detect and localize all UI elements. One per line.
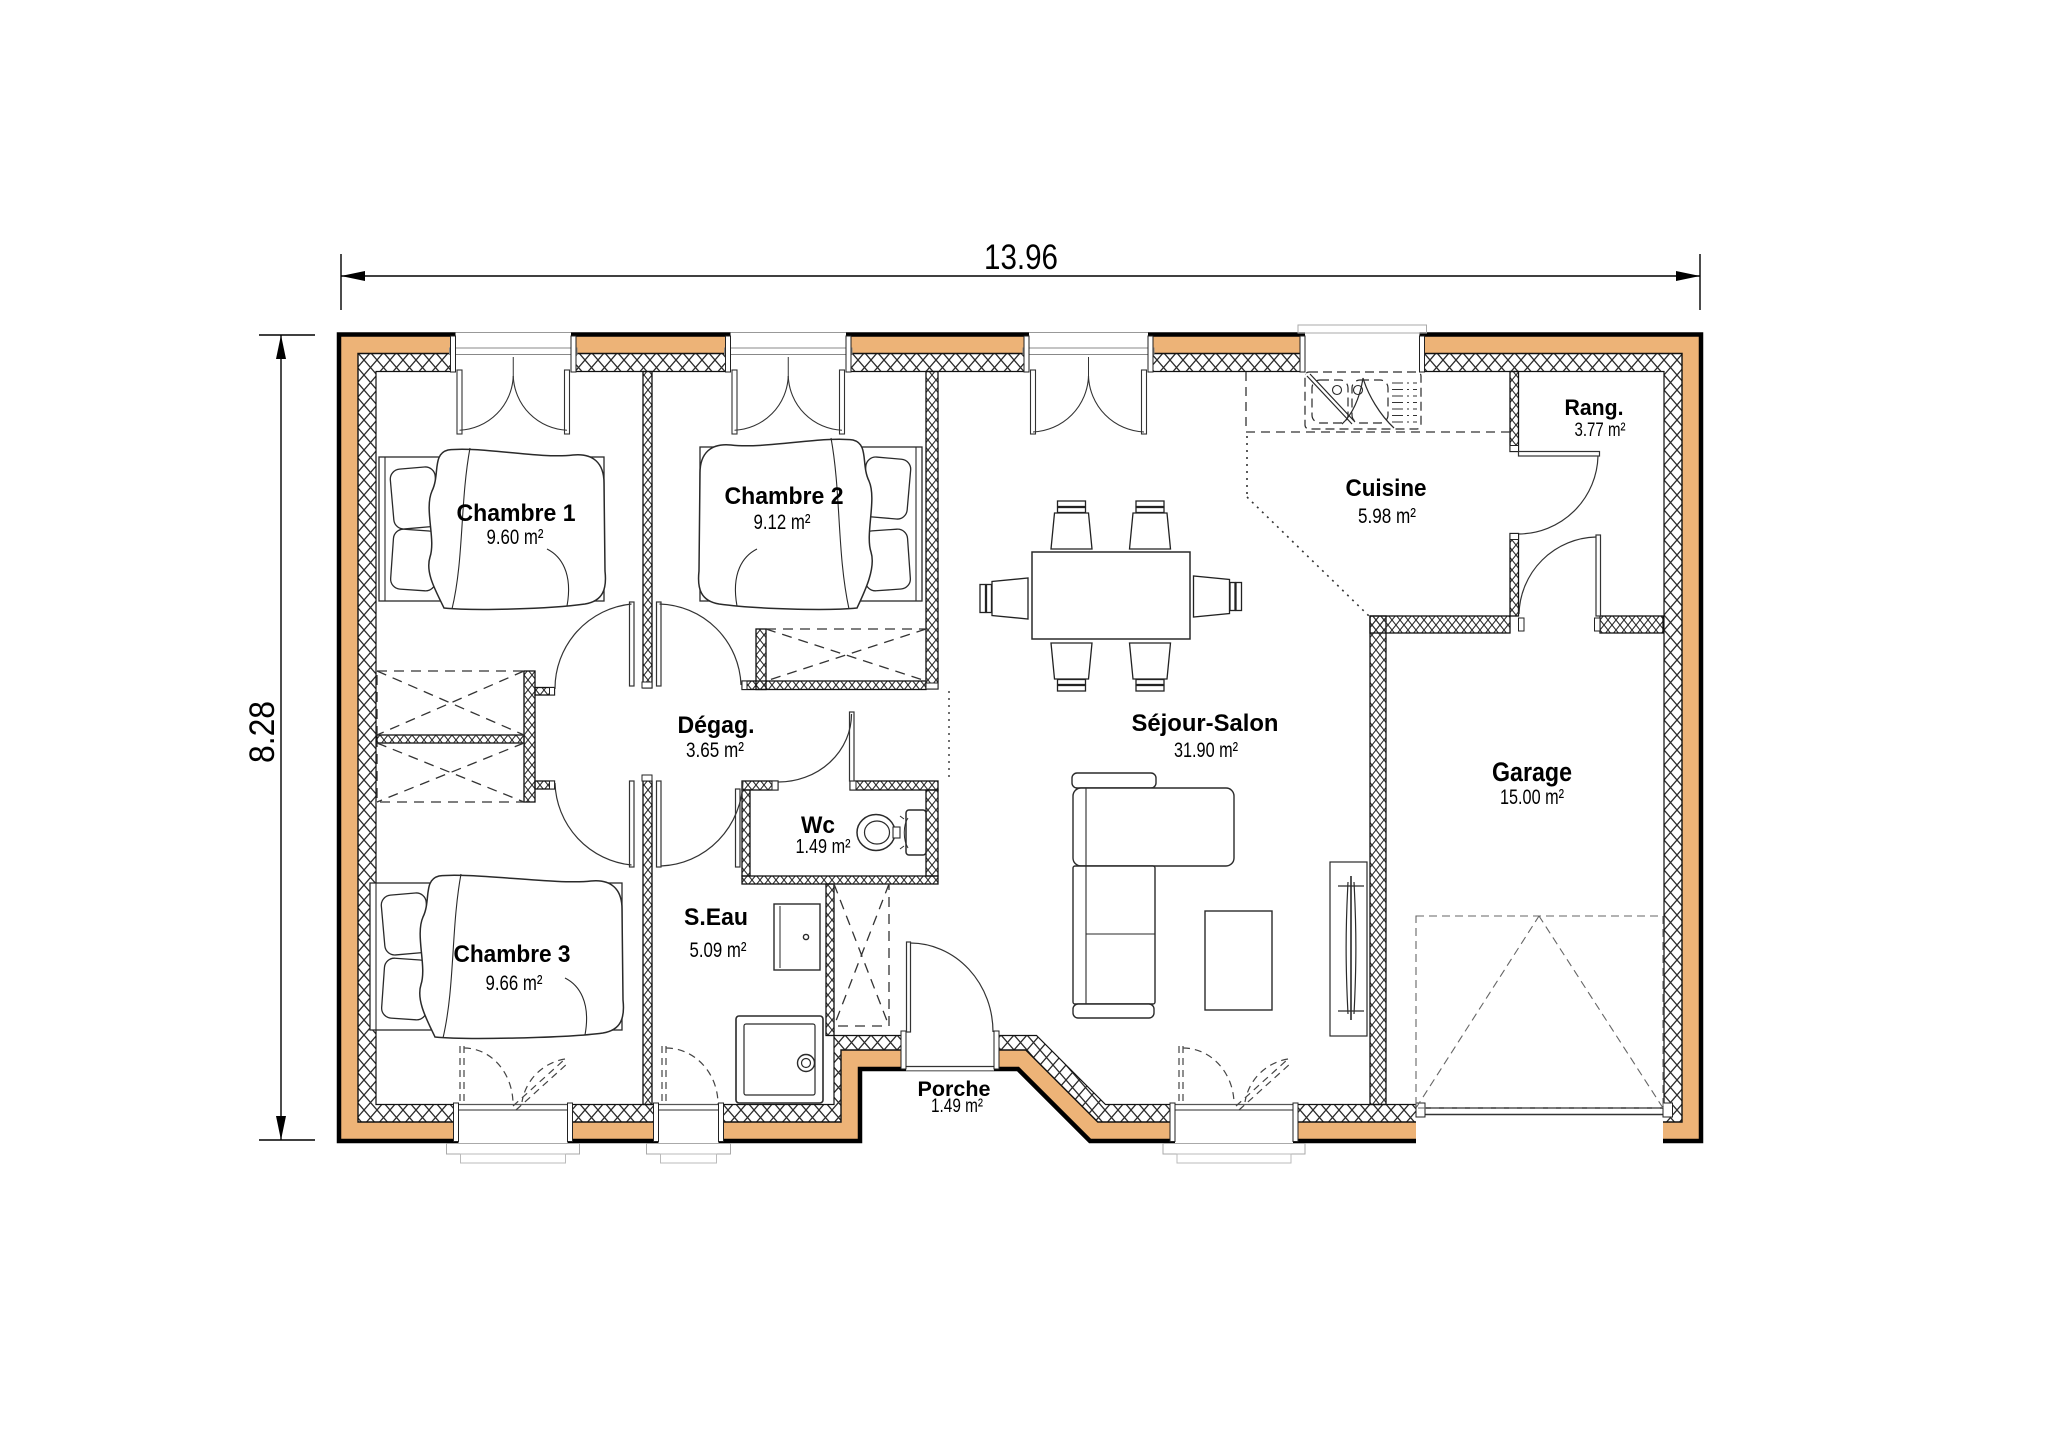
- svg-text:Chambre 1: Chambre 1: [457, 500, 576, 527]
- svg-text:3.77 m²: 3.77 m²: [1575, 420, 1626, 441]
- svg-text:S.Eau: S.Eau: [684, 904, 748, 931]
- svg-text:15.00 m²: 15.00 m²: [1500, 786, 1564, 809]
- svg-text:Séjour-Salon: Séjour-Salon: [1132, 710, 1279, 737]
- svg-text:8.28: 8.28: [243, 701, 282, 763]
- svg-text:Wc: Wc: [801, 812, 835, 839]
- svg-text:13.96: 13.96: [984, 238, 1058, 277]
- svg-text:5.09 m²: 5.09 m²: [690, 939, 747, 962]
- svg-text:5.98 m²: 5.98 m²: [1358, 505, 1416, 528]
- svg-text:Rang.: Rang.: [1565, 395, 1624, 420]
- svg-text:Chambre 2: Chambre 2: [725, 483, 844, 510]
- svg-text:1.49 m²: 1.49 m²: [796, 836, 851, 858]
- svg-text:Chambre 3: Chambre 3: [454, 941, 571, 968]
- svg-text:Cuisine: Cuisine: [1346, 475, 1427, 502]
- svg-text:9.60 m²: 9.60 m²: [487, 526, 544, 549]
- svg-text:1.49 m²: 1.49 m²: [931, 1096, 983, 1117]
- svg-text:31.90 m²: 31.90 m²: [1174, 739, 1238, 762]
- svg-text:Garage: Garage: [1492, 757, 1572, 787]
- svg-text:Dégag.: Dégag.: [678, 712, 755, 739]
- svg-text:9.66 m²: 9.66 m²: [486, 972, 543, 995]
- svg-text:9.12 m²: 9.12 m²: [754, 511, 811, 534]
- svg-text:3.65 m²: 3.65 m²: [686, 739, 744, 762]
